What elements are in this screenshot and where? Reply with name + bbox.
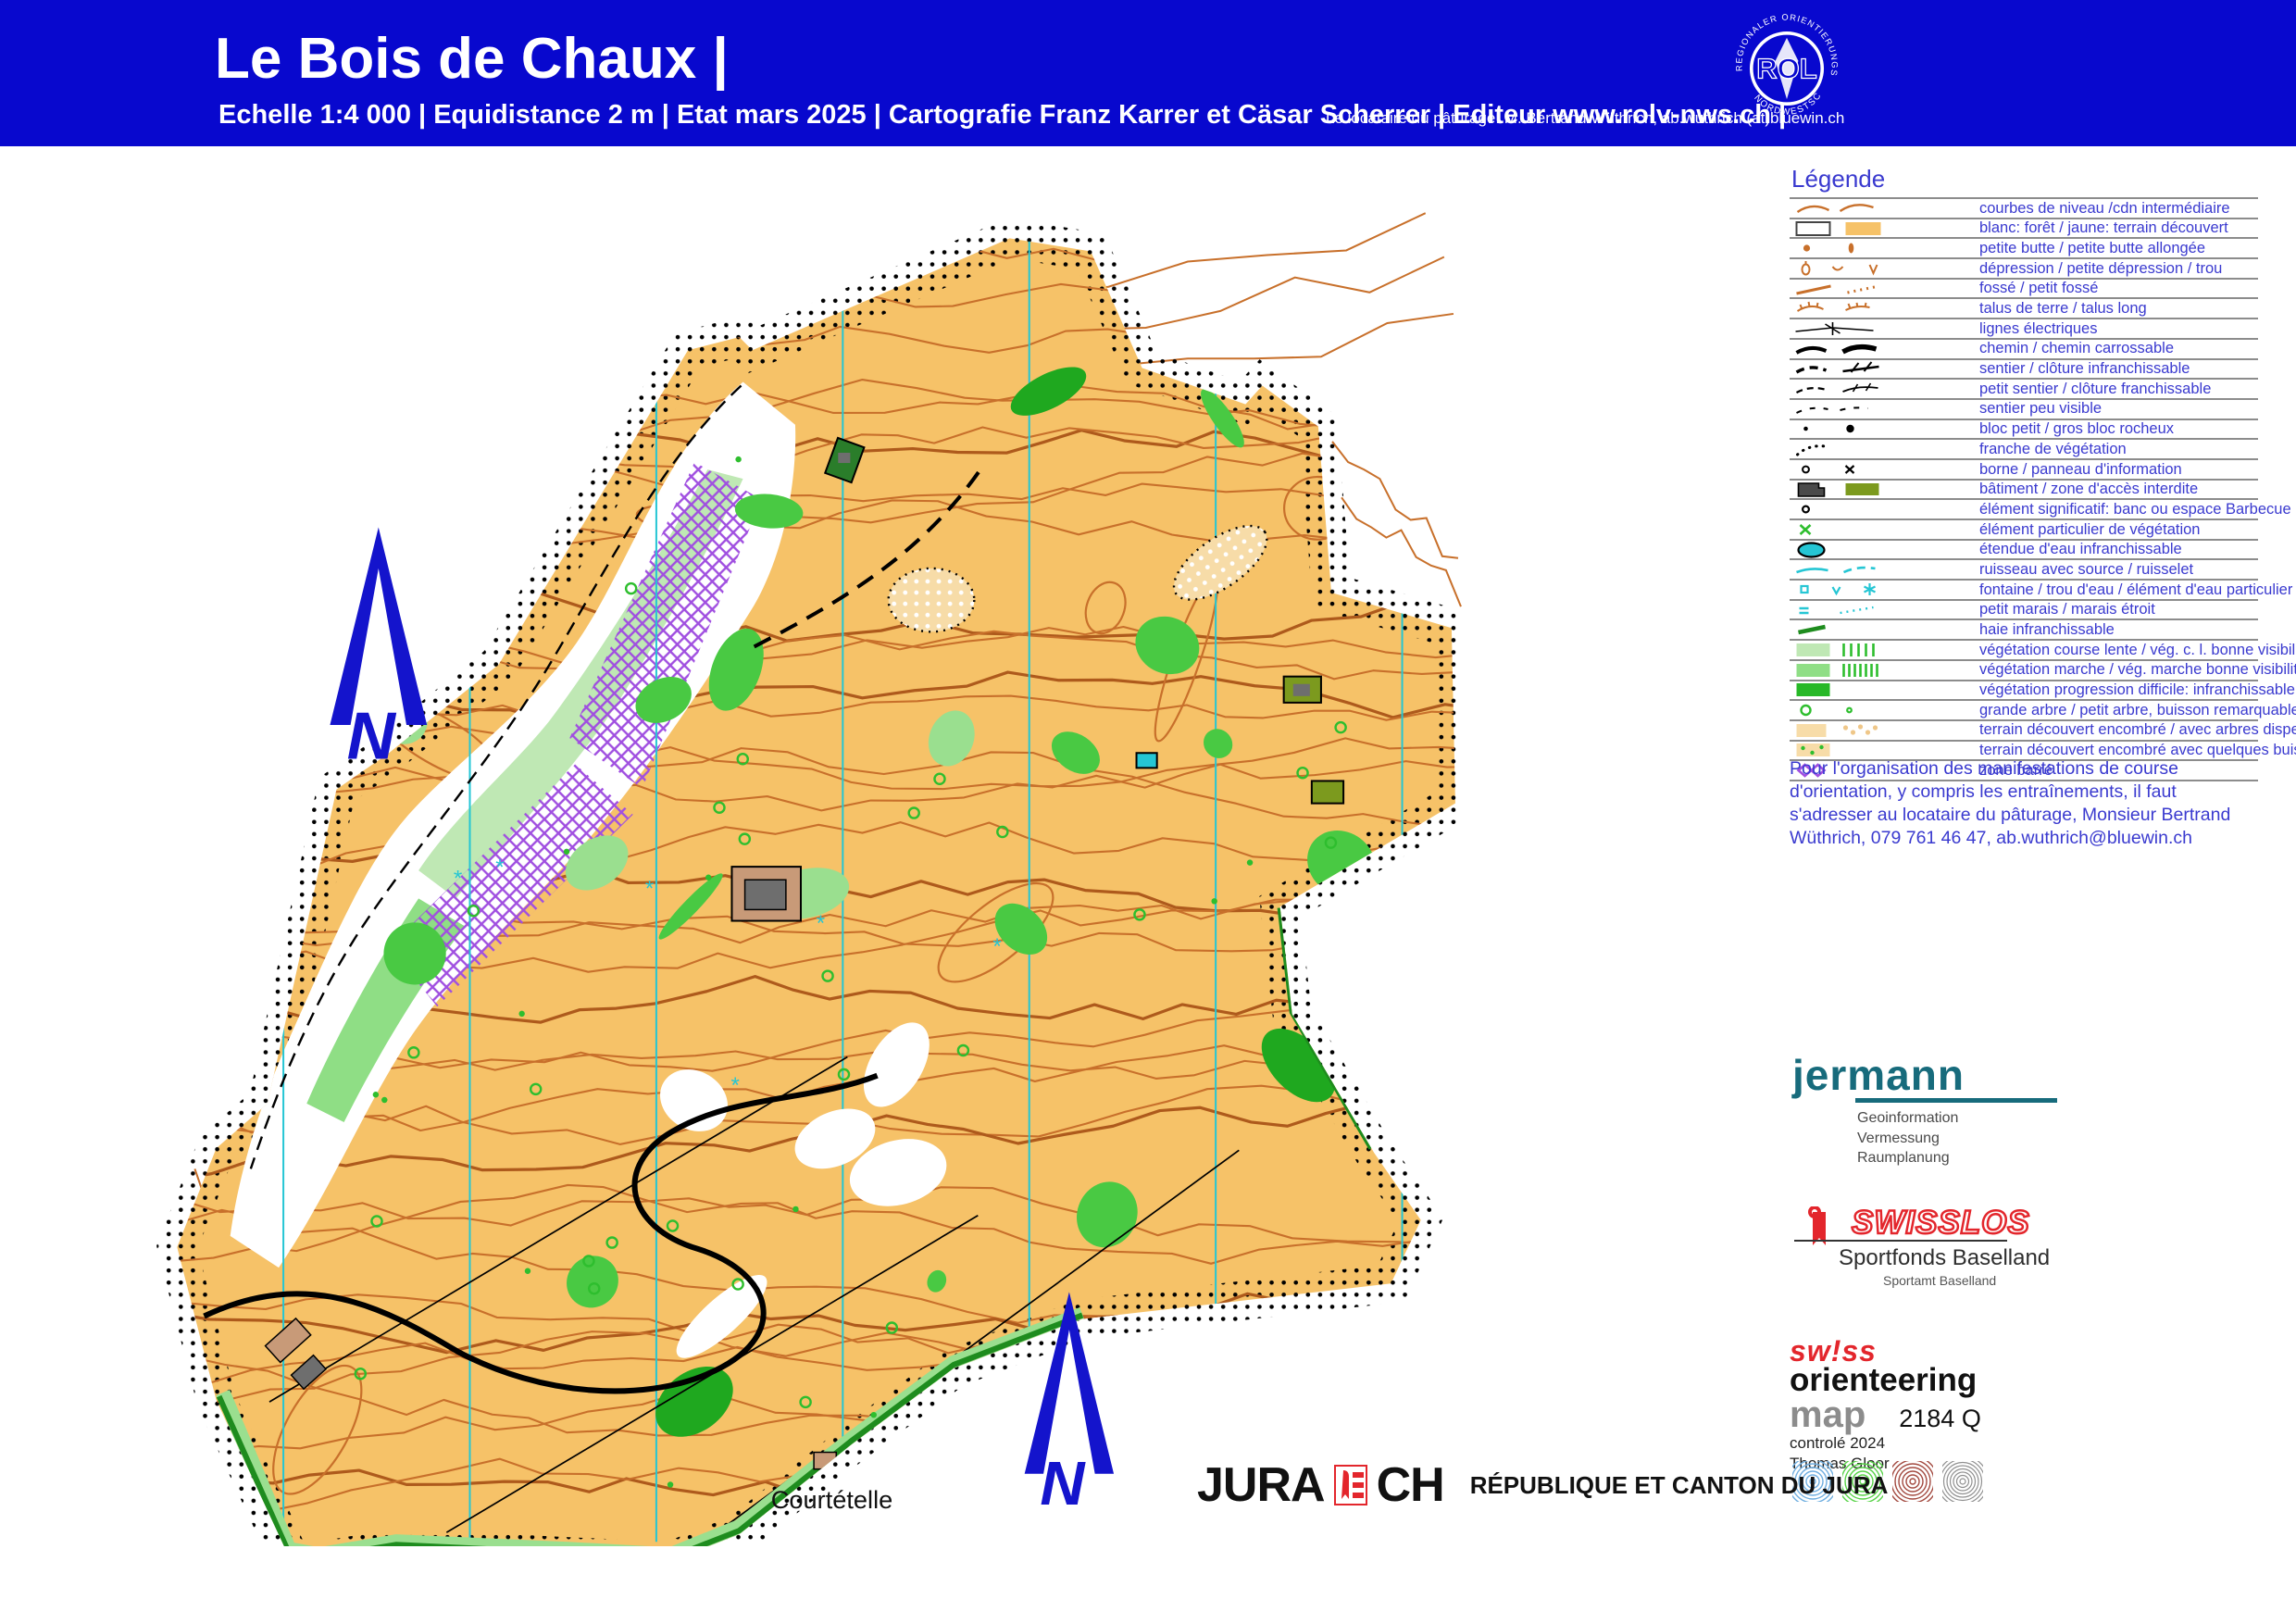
legend-row: bâtiment / zone d'accès interdite [1790, 479, 2258, 499]
map-title: Le Bois de Chaux | [215, 26, 729, 92]
svg-text:*: * [731, 1073, 741, 1098]
legend-label: végétation course lente / vég. c. l. bon… [1979, 643, 2296, 658]
legend-label: sentier / clôture infranchissable [1979, 361, 2190, 377]
jermann-logo: jermann Geoinformation Vermessung Raumpl… [1792, 1054, 2057, 1168]
forest-icon [1790, 219, 1979, 238]
legend-row: élément particulier de végétation [1790, 518, 2258, 539]
map-code: 2184 Q [1899, 1405, 1981, 1433]
legend-row: terrain découvert encombré / avec arbres… [1790, 719, 2258, 740]
legend-row: blanc: forêt / jaune: terrain découvert [1790, 218, 2258, 238]
legend-row: sentier / clôture infranchissable [1790, 358, 2258, 379]
legend-row: courbes de niveau /cdn intermédiaire [1790, 197, 2258, 218]
legend-label: borne / panneau d'information [1979, 462, 2182, 478]
legend-label: blanc: forêt / jaune: terrain découvert [1979, 220, 2228, 236]
legend-row: chemin / chemin carrossable [1790, 338, 2258, 358]
swiss-wordmark: sw!ss [1790, 1337, 2095, 1365]
jura-ch-wordmark: CH [1377, 1461, 1444, 1509]
legend-row: étendue d'eau infranchissable [1790, 539, 2258, 559]
svg-text:*: * [817, 911, 826, 936]
depression-icon [1790, 259, 1979, 278]
legend-label: dépression / petite dépression / trou [1979, 261, 2222, 277]
legend-row: bloc petit / gros bloc rocheux [1790, 418, 2258, 439]
organisation-note: Pour l'organisation des manifestations d… [1790, 757, 2232, 850]
legend-row: terrain découvert encombré avec quelques… [1790, 740, 2258, 760]
legend-row: petit sentier / clôture franchissable [1790, 378, 2258, 398]
legend-label: végétation progression difficile: infran… [1979, 682, 2295, 698]
header-bar: Le Bois de Chaux | Echelle 1:4 000 | Equ… [0, 0, 2296, 146]
franche-icon [1790, 440, 1979, 458]
legend-label: petit marais / marais étroit [1979, 602, 2155, 618]
jura-logo: JURA CH RÉPUBLIQUE ET CANTON DU JURA [1197, 1461, 1888, 1509]
map-wordmark: map [1790, 1396, 1865, 1433]
legend-row: haie infranchissable [1790, 618, 2258, 639]
batiment-icon [1790, 480, 1979, 498]
legend-label: bâtiment / zone d'accès interdite [1979, 481, 2198, 497]
orienteering-wordmark: orienteering [1790, 1365, 2095, 1395]
chemin-icon [1790, 340, 1979, 358]
veg-diff-icon [1790, 681, 1979, 699]
vegx-icon [1790, 520, 1979, 539]
power-icon [1790, 319, 1979, 338]
legend-row: franche de végétation [1790, 438, 2258, 458]
legend-label: chemin / chemin carrossable [1979, 341, 2174, 356]
legend-label: talus de terre / talus long [1979, 301, 2147, 317]
legend-row: végétation course lente / vég. c. l. bon… [1790, 639, 2258, 659]
legend-label: petit sentier / clôture franchissable [1979, 381, 2211, 397]
butte-icon [1790, 239, 1979, 257]
svg-text:N: N [1040, 1450, 1086, 1518]
legend-row: borne / panneau d'information [1790, 458, 2258, 479]
jermann-wordmark: jermann [1792, 1054, 2057, 1096]
svg-text:ROL: ROL [1756, 52, 1816, 84]
map-canvas: ****** N N Courtételle [139, 157, 1463, 1546]
swisslos-logo: SWISSLOS Sportfonds Baselland Sportamt B… [1794, 1199, 2072, 1301]
veg-lente-icon [1790, 641, 1979, 659]
marais-icon [1790, 601, 1979, 619]
petit-sentier-icon [1790, 380, 1979, 398]
legend-row: fossé / petit fossé [1790, 278, 2258, 298]
legend-label: lignes électriques [1979, 321, 2098, 337]
pattern-square-gray [1942, 1461, 1983, 1502]
legend-label: élément significatif: banc ou espace Bar… [1979, 502, 2291, 518]
haie-icon [1790, 620, 1979, 639]
page: Le Bois de Chaux | Echelle 1:4 000 | Equ… [0, 0, 2296, 1624]
legend-label: haie infranchissable [1979, 622, 2115, 638]
legend-row: végétation progression difficile: infran… [1790, 680, 2258, 700]
map-checked: controlé 2024 [1790, 1433, 2095, 1454]
swisslos-subtitle2: Sportamt Baselland [1883, 1273, 1996, 1288]
legend-label: élément particulier de végétation [1979, 522, 2200, 538]
town-label: Courtételle [771, 1485, 892, 1514]
legend-label: franche de végétation [1979, 442, 2127, 457]
swiss-orienteering-logo: sw!ss orienteering map 2184 Q controlé 2… [1790, 1337, 2095, 1474]
legend-label: ruisseau avec source / ruisselet [1979, 562, 2193, 578]
swisslos-subtitle: Sportfonds Baselland [1839, 1245, 2050, 1271]
legend-row: sentier peu visible [1790, 398, 2258, 418]
jermann-line: Geoinformation [1857, 1108, 2057, 1129]
swisslos-wordmark: SWISSLOS [1852, 1205, 2030, 1242]
jermann-line: Vermessung [1857, 1129, 2057, 1149]
blocs-icon [1790, 419, 1979, 438]
jermann-line: Raumplanung [1857, 1148, 2057, 1168]
legend-row: élément significatif: banc ou espace Bar… [1790, 498, 2258, 518]
baselland-crest-icon [1805, 1206, 1833, 1255]
legend-row: petite butte / petite butte allongée [1790, 237, 2258, 257]
legend-label: étendue d'eau infranchissable [1979, 542, 2182, 557]
rolv-logo: REGIONALER ORIENTIERUNGSLAUF - VERBAND N… [1729, 11, 1844, 131]
rough-open-icon [1790, 721, 1979, 740]
rough-open-patch [889, 568, 975, 631]
legend-label: petite butte / petite butte allongée [1979, 241, 2205, 256]
legend-label: fossé / petit fossé [1979, 281, 2098, 296]
legend-row: ruisseau avec source / ruisselet [1790, 558, 2258, 579]
fontaine-icon [1790, 581, 1979, 599]
jura-crest-icon [1334, 1465, 1367, 1505]
svg-text:*: * [645, 876, 655, 901]
legend-row: grande arbre / petit arbre, buisson rema… [1790, 699, 2258, 719]
legend-row: végétation marche / vég. marche bonne vi… [1790, 659, 2258, 680]
legend-label: végétation marche / vég. marche bonne vi… [1979, 662, 2296, 678]
legend-row: lignes électriques [1790, 318, 2258, 338]
rolv-logo-icon: REGIONALER ORIENTIERUNGSLAUF - VERBAND N… [1729, 11, 1844, 126]
talus-icon [1790, 299, 1979, 318]
legend-label: terrain découvert encombré avec quelques… [1979, 743, 2296, 758]
legend-row: fontaine / trou d'eau / élément d'eau pa… [1790, 579, 2258, 599]
veg-marche-icon [1790, 661, 1979, 680]
orienteering-map: ****** N N Courtételle [139, 157, 1463, 1546]
legend-label: grande arbre / petit arbre, buisson rema… [1979, 703, 2296, 718]
legend-row: talus de terre / talus long [1790, 297, 2258, 318]
arbres-icon [1790, 701, 1979, 719]
legend-label: terrain découvert encombré / avec arbres… [1979, 722, 2296, 738]
legend-title: Légende [1791, 165, 2258, 194]
svg-text:*: * [992, 934, 1002, 959]
sentier-icon [1790, 359, 1979, 378]
legend-label: bloc petit / gros bloc rocheux [1979, 421, 2174, 437]
jura-caption: RÉPUBLIQUE ET CANTON DU JURA [1470, 1471, 1889, 1500]
legend-table: courbes de niveau /cdn intermédiaireblan… [1790, 197, 2258, 781]
svg-text:*: * [454, 866, 463, 891]
borne-icon [1790, 460, 1979, 479]
sentier-peu-icon [1790, 400, 1979, 418]
legend-row: petit marais / marais étroit [1790, 599, 2258, 619]
legend-row: dépression / petite dépression / trou [1790, 257, 2258, 278]
legend-label: courbes de niveau /cdn intermédiaire [1979, 201, 2230, 217]
pattern-square-red [1892, 1461, 1933, 1502]
legend-label: sentier peu visible [1979, 401, 2102, 417]
svg-text:N: N [347, 698, 397, 773]
svg-text:*: * [495, 855, 505, 880]
ruisseau-icon [1790, 560, 1979, 579]
banc-icon [1790, 500, 1979, 518]
etendue-icon [1790, 541, 1979, 559]
legend-panel: Légende courbes de niveau /cdn intermédi… [1790, 165, 2258, 781]
jura-wordmark: JURA [1197, 1461, 1325, 1509]
legend-label: fontaine / trou d'eau / élément d'eau pa… [1979, 582, 2292, 598]
fosse-icon [1790, 280, 1979, 298]
contours-icon [1790, 199, 1979, 218]
